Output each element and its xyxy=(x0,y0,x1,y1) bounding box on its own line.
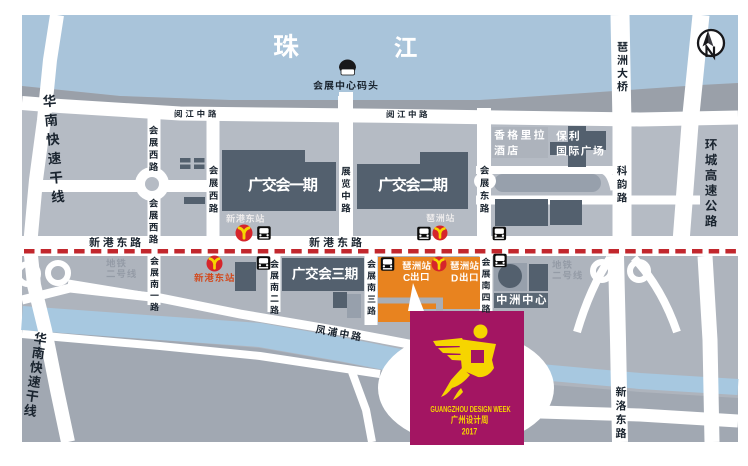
svg-text:2017: 2017 xyxy=(462,427,478,437)
svg-text:C: C xyxy=(403,273,410,284)
svg-text:D: D xyxy=(451,274,458,285)
svg-text:GUANGZHOU DESIGN WEEK: GUANGZHOU DESIGN WEEK xyxy=(430,406,510,414)
